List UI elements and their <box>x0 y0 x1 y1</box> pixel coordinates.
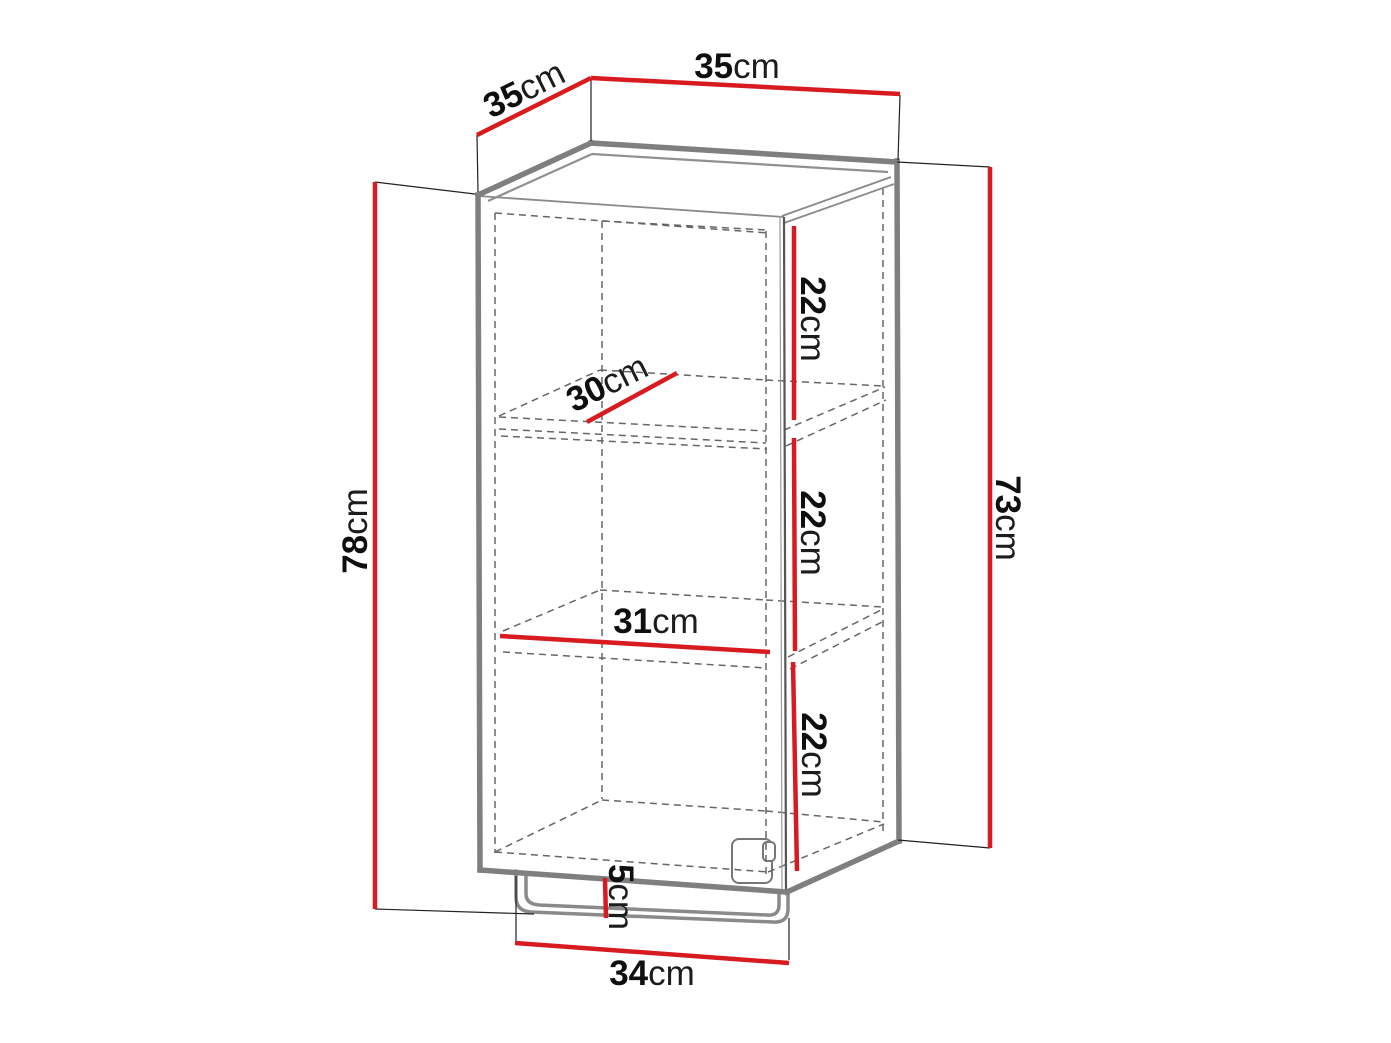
dimension-diagram-canvas: 35cm 35cm 78cm 73cm 22cm 22cm 22cm 30cm … <box>0 0 1391 1043</box>
shelf2-side-top-hidden <box>788 609 883 657</box>
top-inset-left-edge <box>488 154 592 201</box>
dimension-label-height-body: 73cm <box>988 475 1027 561</box>
dimension-label-rail-gap: 5cm <box>601 864 640 930</box>
dimension-rail-width: 34cm <box>515 943 789 993</box>
right-panel-inner-line <box>780 217 782 889</box>
dimension-shelf-depth: 30cm <box>560 347 677 422</box>
interior-top-back-edge <box>602 221 766 230</box>
top-front-edge <box>478 196 784 217</box>
ext-height-left-top <box>375 182 475 194</box>
shadows <box>482 170 922 907</box>
dimension-label-height-total: 78cm <box>336 488 375 574</box>
cabinet-body <box>478 143 899 892</box>
shelf1-front-top-edge <box>499 417 766 431</box>
right-side-shadow <box>900 170 922 843</box>
interior-bottom-back-hidden <box>766 811 883 822</box>
hinge-bracket <box>732 839 775 883</box>
edge-top-back <box>591 143 897 162</box>
cabinet-dimension-drawing: 35cm 35cm 78cm 73cm 22cm 22cm 22cm 30cm … <box>0 0 1391 1043</box>
interior-bottom-left-edge <box>495 800 602 852</box>
shelf2-back-edge-hidden <box>766 600 883 607</box>
dimension-label-section-bottom: 22cm <box>794 712 833 798</box>
upper-shelf <box>499 370 886 449</box>
ext-width-right <box>898 95 900 160</box>
dimension-label-rail-width: 34cm <box>609 954 695 993</box>
dimension-rail-gap: 5cm <box>601 864 640 930</box>
cabinet-outline <box>478 143 899 892</box>
shelf2-back-edge <box>600 590 766 600</box>
dimension-section-top: 22cm <box>793 226 832 420</box>
edge-left-front <box>478 195 480 870</box>
dimension-label-section-top: 22cm <box>793 276 832 362</box>
ext-height-right-top <box>897 162 990 167</box>
interior-bottom-back-edge <box>602 800 766 811</box>
ext-depth-front <box>477 135 478 192</box>
ext-height-right-bottom <box>898 840 990 848</box>
front-right-edge <box>784 217 786 891</box>
dimension-label-width-top: 35cm <box>694 47 780 86</box>
dimension-label-section-middle: 22cm <box>793 490 832 576</box>
dimension-height-total: 78cm <box>336 182 375 909</box>
shelf1-front-lower-edge <box>501 436 767 449</box>
shelf2-side-bottom-hidden <box>790 621 884 669</box>
top-right-edge <box>782 177 891 216</box>
shelf2-front-bottom-edge <box>503 652 766 668</box>
dimension-section-bottom: 22cm <box>793 662 833 871</box>
edge-bottom-right <box>787 841 899 892</box>
dimension-shelf-width: 31cm <box>500 602 770 652</box>
dimension-width-top: 35cm <box>591 47 900 94</box>
dimension-height-body: 73cm <box>988 167 1027 848</box>
edge-right-back <box>897 161 899 841</box>
ext-height-left-bottom <box>375 909 534 914</box>
dimension-label-shelf-width: 31cm <box>613 602 699 641</box>
top-right-inner-edge <box>784 184 894 223</box>
dimension-depth-top: 35cm <box>477 53 591 135</box>
shelf1-front-bottom-edge <box>499 429 766 443</box>
edge-top-left <box>478 143 591 195</box>
shelf2-left-edge <box>503 590 600 631</box>
dimension-label-depth-top: 35cm <box>477 53 571 126</box>
dimension-section-middle: 22cm <box>793 438 832 651</box>
hinge-tab <box>763 842 775 861</box>
